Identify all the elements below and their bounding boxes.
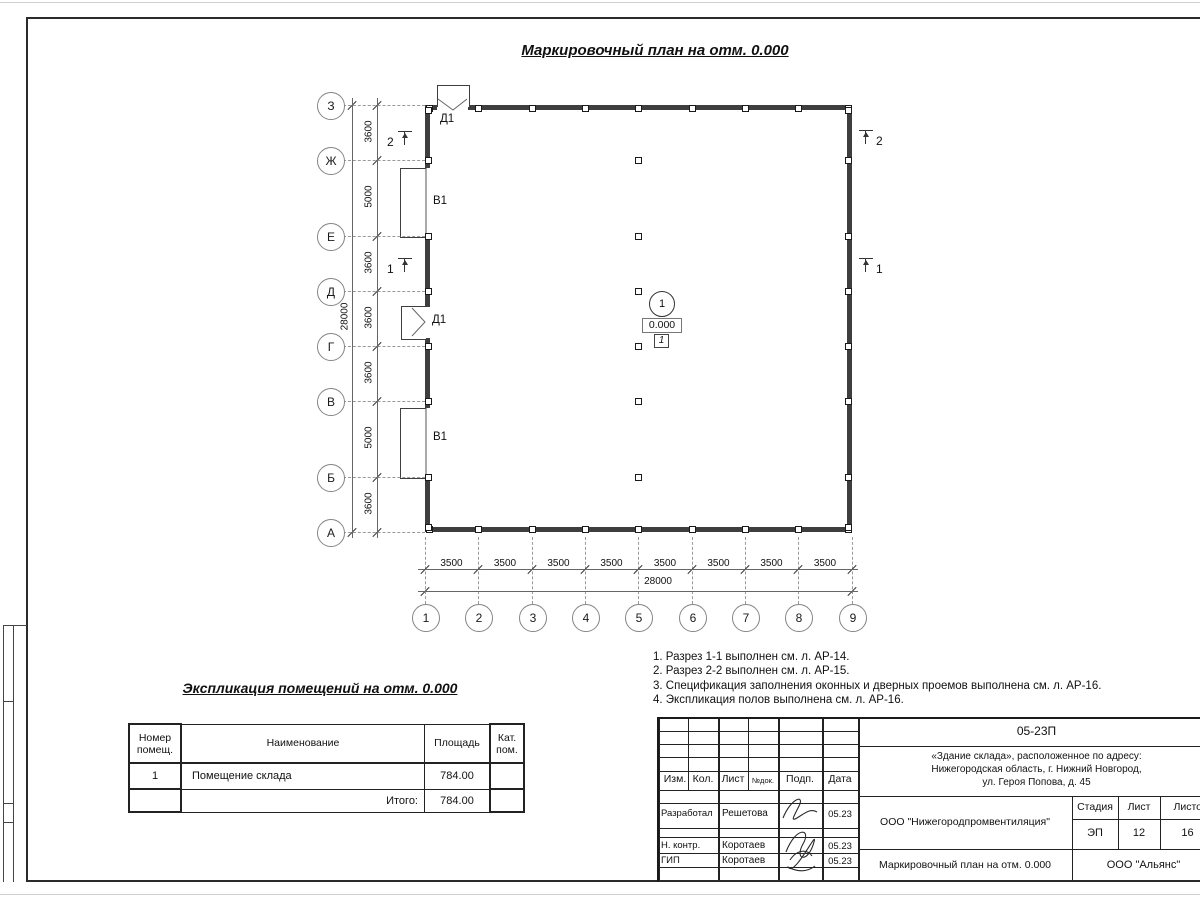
dim-line-row-segments xyxy=(377,98,378,538)
dim-value: 3600 xyxy=(364,232,375,292)
axis-line-row xyxy=(343,346,425,347)
column-marker xyxy=(582,526,589,533)
section-mark-icon xyxy=(859,130,873,146)
axis-bubble-col: 3 xyxy=(519,604,547,632)
tb-date: 05.23 xyxy=(822,856,858,867)
notes-block: 1. Разрез 1-1 выполнен см. л. АР-14. 2. … xyxy=(653,650,1101,708)
window-mark-label: В1 xyxy=(433,195,447,207)
column-marker xyxy=(635,343,642,350)
column-marker xyxy=(582,105,589,112)
axis-bubble-row: А xyxy=(317,519,345,547)
section-number: 1 xyxy=(876,262,883,276)
total-value: 784.00 xyxy=(425,789,491,812)
column-marker xyxy=(845,474,852,481)
axis-bubble-col: 9 xyxy=(839,604,867,632)
column-marker xyxy=(845,398,852,405)
stage-label: Стадия xyxy=(1072,801,1118,813)
axis-line-col xyxy=(852,537,853,604)
column-marker xyxy=(845,107,852,114)
project-address: «Здание склада», расположенное по адресу… xyxy=(860,750,1200,789)
sheet-title: Маркировочный план на отм. 0.000 xyxy=(860,859,1070,871)
column-marker xyxy=(425,474,432,481)
elevation-mark: 0.000 xyxy=(642,318,682,333)
column-marker xyxy=(845,343,852,350)
section-mark-icon xyxy=(398,131,412,147)
titleblock-line xyxy=(858,746,1200,747)
column-marker xyxy=(689,526,696,533)
titleblock-line xyxy=(658,837,858,838)
column-marker xyxy=(425,233,432,240)
sheets-total: 16 xyxy=(1160,827,1200,839)
client-firm: ООО "Альянс" xyxy=(1072,859,1200,871)
axis-bubble-row: Е xyxy=(317,223,345,251)
axis-line-col xyxy=(798,537,799,604)
dim-value: 3600 xyxy=(364,101,375,161)
axis-line-col xyxy=(478,537,479,604)
axis-bubble-row: Ж xyxy=(317,147,345,175)
titleblock-line xyxy=(658,803,858,804)
address-line: Нижегородская область, г. Нижний Новгоро… xyxy=(860,763,1200,776)
dim-value: 3500 xyxy=(746,558,798,569)
column-marker xyxy=(475,526,482,533)
dim-value: 3500 xyxy=(693,558,745,569)
titleblock-line xyxy=(718,718,720,880)
note-line: 3. Спецификация заполнения оконных и две… xyxy=(653,679,1101,693)
door-mark-label: Д1 xyxy=(432,314,446,326)
dim-value: 5000 xyxy=(364,408,375,468)
axis-bubble-col: 4 xyxy=(572,604,600,632)
axis-line-row xyxy=(343,532,425,533)
tb-col-data: Дата xyxy=(822,773,858,785)
sheet-number: 12 xyxy=(1118,827,1160,839)
axis-bubble-col: 5 xyxy=(625,604,653,632)
axis-line-col xyxy=(425,537,426,604)
axis-line-row xyxy=(343,401,425,402)
explication-header-row: Номер помещ. Наименование Площадь Кат. п… xyxy=(129,724,524,763)
axis-bubble-col: 1 xyxy=(412,604,440,632)
column-marker xyxy=(425,398,432,405)
tb-col-podp: Подп. xyxy=(778,773,822,785)
titleblock-line xyxy=(858,718,860,880)
dim-value: 3500 xyxy=(479,558,531,569)
section-number: 2 xyxy=(387,135,394,149)
column-marker xyxy=(635,526,642,533)
explication-title: Экспликация помещений на отм. 0.000 xyxy=(140,680,500,696)
note-line: 4. Экспликация полов выполнена см. л. АР… xyxy=(653,693,1101,707)
tb-name: Решетова xyxy=(722,808,768,819)
dim-line-col-total xyxy=(418,591,858,592)
room-number-bubble: 1 xyxy=(649,291,675,317)
header-area: Площадь xyxy=(425,724,491,763)
column-marker xyxy=(475,105,482,112)
column-marker xyxy=(635,288,642,295)
titleblock-line xyxy=(858,796,1200,797)
header-category: Кат. пом. xyxy=(490,724,524,763)
tb-name: Коротаев xyxy=(722,840,765,851)
dim-value: 3500 xyxy=(639,558,691,569)
cell-empty xyxy=(490,789,524,812)
column-marker xyxy=(742,105,749,112)
tb-date: 05.23 xyxy=(822,809,858,820)
column-marker xyxy=(425,524,432,531)
titleblock-line xyxy=(658,828,858,829)
axis-line-col xyxy=(745,537,746,604)
stage-value: ЭП xyxy=(1072,827,1118,839)
axis-bubble-col: 7 xyxy=(732,604,760,632)
tb-col-kol: Кол. xyxy=(688,773,718,785)
axis-bubble-row: В xyxy=(317,388,345,416)
axis-line-row xyxy=(343,160,425,161)
dim-value: 3500 xyxy=(426,558,478,569)
column-marker xyxy=(425,288,432,295)
cell-empty xyxy=(129,789,181,812)
column-marker xyxy=(635,233,642,240)
window-mark-label: В1 xyxy=(433,431,447,443)
dim-total: 28000 xyxy=(628,576,688,587)
dim-value: 3500 xyxy=(533,558,585,569)
column-marker xyxy=(795,526,802,533)
axis-line-row xyxy=(343,477,425,478)
axis-bubble-row: З xyxy=(317,92,345,120)
column-marker xyxy=(689,105,696,112)
tb-name: Коротаев xyxy=(722,855,765,866)
dim-value: 3500 xyxy=(586,558,638,569)
column-marker xyxy=(845,288,852,295)
cell-room-name: Помещение склада xyxy=(181,763,425,789)
dim-value: 3600 xyxy=(364,287,375,347)
section-mark-icon xyxy=(859,258,873,274)
section-number: 2 xyxy=(876,134,883,148)
column-marker xyxy=(795,105,802,112)
axis-bubble-col: 6 xyxy=(679,604,707,632)
axis-bubble-col: 8 xyxy=(785,604,813,632)
sheet-label: Лист xyxy=(1118,801,1160,813)
titleblock-line xyxy=(657,717,659,882)
tb-role: ГИП xyxy=(661,855,680,866)
design-company: ООО "Нижегородпромвентиляция" xyxy=(860,816,1070,828)
address-line: ул. Героя Попова, д. 45 xyxy=(860,776,1200,789)
column-marker xyxy=(425,343,432,350)
dim-line-row-total xyxy=(352,98,353,538)
column-marker xyxy=(425,107,432,114)
axis-line-row xyxy=(343,105,425,106)
dim-total: 28000 xyxy=(340,287,351,347)
titleblock-line xyxy=(858,849,1200,850)
cell-room-category xyxy=(490,763,524,789)
column-marker xyxy=(425,157,432,164)
header-name: Наименование xyxy=(181,724,425,763)
column-marker xyxy=(529,105,536,112)
tb-col-izm: Изм. xyxy=(662,773,688,785)
axis-bubble-row: Б xyxy=(317,464,345,492)
column-marker xyxy=(845,233,852,240)
doc-number: 05-23П xyxy=(858,724,1200,738)
column-marker xyxy=(635,157,642,164)
note-line: 2. Разрез 2-2 выполнен см. л. АР-15. xyxy=(653,664,1101,678)
explication-table: Номер помещ. Наименование Площадь Кат. п… xyxy=(128,723,525,813)
column-marker xyxy=(635,398,642,405)
dim-value: 3600 xyxy=(364,473,375,533)
door-mark-label: Д1 xyxy=(440,113,454,125)
section-mark-icon xyxy=(398,258,412,274)
titleblock-line xyxy=(658,717,1200,719)
column-marker xyxy=(742,526,749,533)
titleblock-line xyxy=(658,853,858,854)
column-marker xyxy=(635,474,642,481)
cell-room-number: 1 xyxy=(129,763,181,789)
dim-value: 5000 xyxy=(364,167,375,227)
tb-col-list: Лист xyxy=(718,773,748,785)
axis-line-col xyxy=(585,537,586,604)
signature-scribbles xyxy=(778,788,822,882)
total-label: Итого: xyxy=(181,789,425,812)
tb-role: Н. контр. xyxy=(661,840,700,851)
cell-room-area: 784.00 xyxy=(425,763,491,789)
header-room-number: Номер помещ. xyxy=(129,724,181,763)
address-line: «Здание склада», расположенное по адресу… xyxy=(860,750,1200,763)
axis-bubble-col: 2 xyxy=(465,604,493,632)
axis-line-row xyxy=(343,291,425,292)
section-number: 1 xyxy=(387,262,394,276)
note-line: 1. Разрез 1-1 выполнен см. л. АР-14. xyxy=(653,650,1101,664)
tb-col-ndoc: №док. xyxy=(748,776,778,785)
dim-value: 3500 xyxy=(799,558,851,569)
table-total-row: Итого: 784.00 xyxy=(129,789,524,812)
axis-line-col xyxy=(638,537,639,604)
axis-line-col xyxy=(692,537,693,604)
drawing-sheet: { "plan": { "title": "Маркировочный план… xyxy=(0,0,1200,900)
axis-line-row xyxy=(343,236,425,237)
column-marker xyxy=(845,524,852,531)
titleblock-line xyxy=(1160,796,1161,849)
column-marker xyxy=(635,105,642,112)
column-marker xyxy=(845,157,852,164)
column-marker xyxy=(529,526,536,533)
dim-value: 3600 xyxy=(364,342,375,402)
titleblock-line xyxy=(1072,819,1200,820)
titleblock-line xyxy=(658,790,858,791)
sheets-label: Листов xyxy=(1163,801,1200,813)
floor-type-mark: 1 xyxy=(654,334,669,348)
titleblock-line xyxy=(658,867,858,868)
tb-date: 05.23 xyxy=(822,841,858,852)
table-row: 1 Помещение склада 784.00 xyxy=(129,763,524,789)
axis-line-col xyxy=(532,537,533,604)
dim-line-col-segments xyxy=(418,569,858,570)
tb-role: Разработал xyxy=(661,808,713,819)
